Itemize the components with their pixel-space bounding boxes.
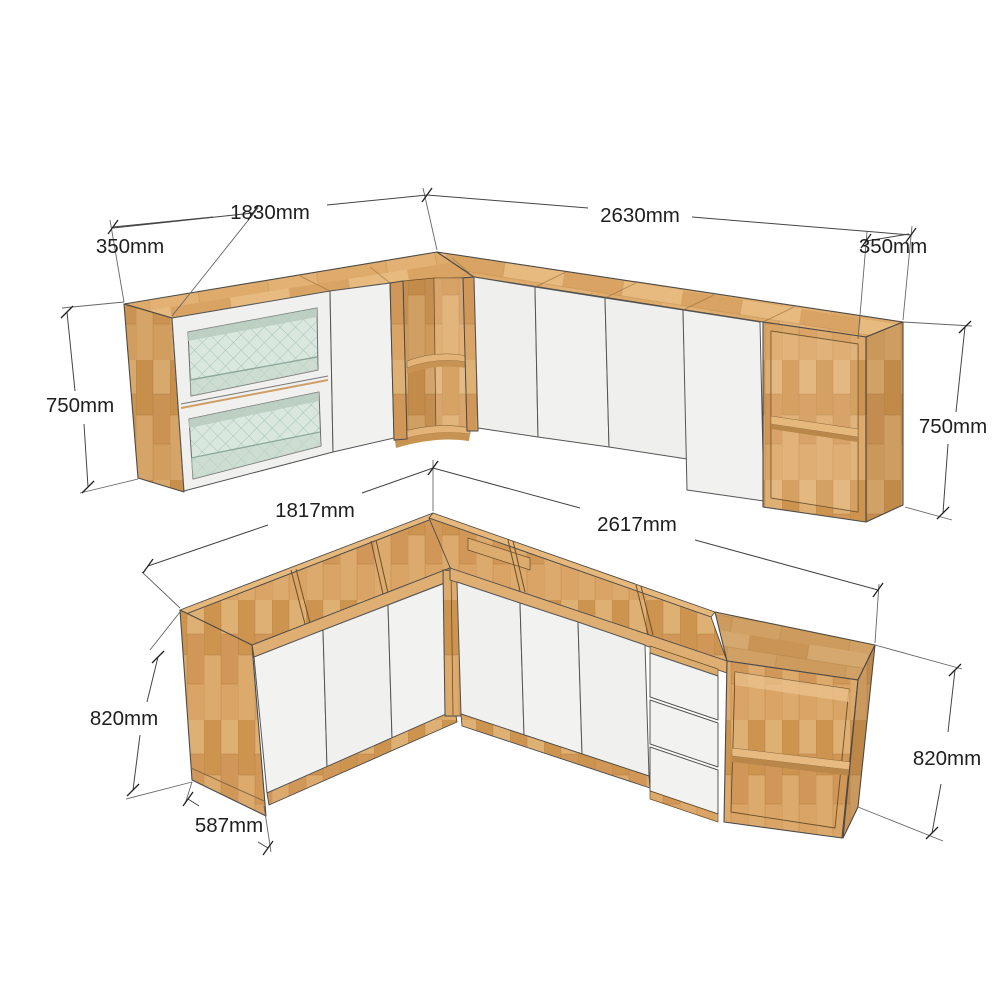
base-drawer-stack: [650, 646, 718, 822]
dim-base-height-left: 820mm: [90, 707, 158, 730]
dim-base-depth: 587mm: [195, 814, 263, 837]
wall-door-2: [535, 287, 609, 447]
base-door-r1: [457, 582, 524, 735]
wall-door-3: [605, 298, 687, 459]
dim-wall-depth-left: 350mm: [96, 235, 164, 258]
wall-corner-shelf-unit: [390, 277, 478, 448]
dim-wall-depth-right: 350mm: [859, 235, 927, 258]
wall-door-left: [330, 283, 394, 452]
base-end-shelf-unit: [715, 612, 875, 838]
base-door-r3: [578, 622, 649, 776]
cabinet-dimension-diagram: 1830mm 2630mm 350mm 350mm 750mm 750mm 18…: [0, 0, 1000, 1000]
dim-base-height-right: 820mm: [913, 747, 981, 770]
dim-base-width-right: 2617mm: [597, 513, 677, 536]
dim-wall-width-left: 1830mm: [230, 201, 310, 224]
wall-door-1: [474, 277, 538, 437]
base-door-l3: [388, 583, 449, 738]
dim-wall-width-right: 2630mm: [600, 204, 680, 227]
wall-door-4-tall: [683, 310, 764, 501]
base-door-r2: [520, 603, 582, 754]
base-door-l1: [254, 630, 327, 793]
wall-end-shelf-unit: [763, 322, 903, 522]
wall-end-side-shade: [866, 322, 903, 522]
dim-wall-height-left: 750mm: [46, 394, 114, 417]
diagram-canvas: 1830mm 2630mm 350mm 350mm 750mm 750mm 18…: [0, 0, 1000, 1000]
dim-base-width-left: 1817mm: [275, 499, 355, 522]
dim-wall-height-right: 750mm: [919, 415, 987, 438]
